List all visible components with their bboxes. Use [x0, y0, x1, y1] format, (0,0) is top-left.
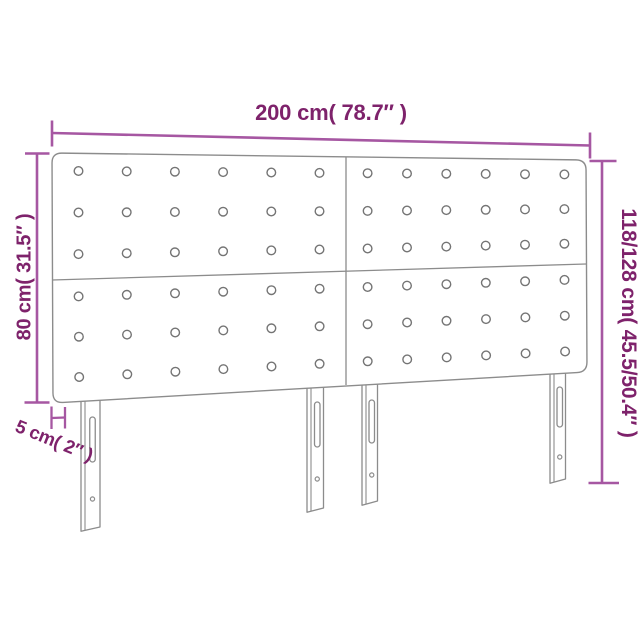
tufting-button [521, 277, 530, 286]
tufting-button [481, 170, 490, 179]
leg-screw-hole [558, 455, 562, 459]
leg-slot [369, 400, 375, 443]
tufting-button [481, 241, 490, 250]
leg-slot [557, 387, 563, 427]
tufting-button [560, 205, 569, 214]
tufting-button [74, 167, 83, 176]
tufting-button [315, 207, 324, 216]
diagram-canvas: 200 cm( 78.7″ ) 80 cm( 31.5″ ) 118/128 c… [0, 0, 640, 640]
tufting-button [363, 169, 372, 178]
tufting-button [363, 357, 372, 366]
tufting-button [363, 207, 372, 216]
tufting-button [481, 206, 490, 215]
tufting-button [403, 206, 412, 215]
tufting-button [521, 205, 530, 214]
tufting-button [219, 247, 228, 256]
tufting-button [171, 367, 180, 376]
tufting-button [122, 249, 131, 258]
leg-slot [315, 402, 321, 447]
tufting-button [267, 207, 276, 216]
tufting-button [403, 318, 412, 327]
headboard-leg [550, 366, 566, 484]
tufting-button [521, 313, 530, 322]
leg-screw-hole [370, 473, 374, 477]
tufting-button [442, 242, 451, 251]
tufting-button [171, 289, 180, 298]
tufting-button [123, 291, 132, 300]
thickness-bracket-bar [52, 418, 66, 419]
tufting-button [315, 322, 324, 331]
headboard-dimension-diagram: 200 cm( 78.7″ ) 80 cm( 31.5″ ) 118/128 c… [0, 0, 640, 640]
tufting-button [315, 169, 324, 178]
tufting-button [442, 317, 451, 326]
headboard-leg [307, 380, 324, 512]
tufting-button [403, 355, 412, 364]
tufting-button [442, 169, 451, 178]
tufting-button [560, 239, 569, 248]
tufting-button [363, 283, 372, 292]
tufting-button [403, 243, 412, 252]
tufting-button [75, 332, 84, 341]
tufting-button [267, 324, 276, 333]
tufting-button [482, 279, 491, 288]
tufting-button [74, 208, 83, 217]
tufting-button [267, 246, 276, 255]
tufting-button [521, 349, 530, 358]
tufting-button [560, 170, 569, 179]
tufting-button [74, 292, 83, 301]
tufting-button [171, 248, 180, 257]
tufting-button [219, 365, 228, 374]
tufting-button [315, 360, 324, 369]
headboard-leg [362, 377, 378, 506]
leg-screw-hole [90, 497, 94, 501]
tufting-button [442, 353, 451, 362]
tufting-button [363, 320, 372, 329]
tufting-button [74, 250, 83, 259]
tufting-button [122, 167, 131, 176]
tufting-button [219, 287, 228, 296]
tufting-button [171, 208, 180, 217]
tufting-button [267, 286, 276, 295]
tufting-button [75, 373, 84, 382]
width-dimension-label: 200 cm( 78.7″ ) [255, 100, 407, 125]
leg-screw-hole [315, 477, 319, 481]
tufting-button [442, 206, 451, 215]
tufting-button [123, 330, 132, 339]
tufting-button [267, 168, 276, 177]
total-height-dimension-label: 118/128 cm( 45.5/50.4″ ) [617, 208, 640, 437]
tufting-button [482, 315, 491, 324]
tufting-button [122, 208, 131, 217]
tufting-button [561, 311, 570, 320]
tufting-button [219, 326, 228, 335]
tufting-button [315, 245, 324, 254]
tufting-button [267, 362, 276, 371]
tufting-button [171, 167, 180, 176]
tufting-button [521, 170, 530, 179]
tufting-button [171, 328, 180, 337]
tufting-button [403, 169, 412, 178]
tufting-button [315, 284, 324, 293]
tufting-button [219, 168, 228, 177]
width-dimension-line [52, 133, 590, 146]
tufting-button [403, 281, 412, 290]
tufting-button [442, 280, 451, 289]
tufting-button [482, 351, 491, 360]
tufting-button [560, 276, 569, 285]
tufting-button [219, 207, 228, 216]
tufting-button [123, 370, 132, 379]
tufting-button [561, 347, 570, 356]
tufting-button [521, 240, 530, 249]
tufting-button [363, 244, 372, 253]
board-height-dimension-label: 80 cm( 31.5″ ) [14, 214, 36, 341]
